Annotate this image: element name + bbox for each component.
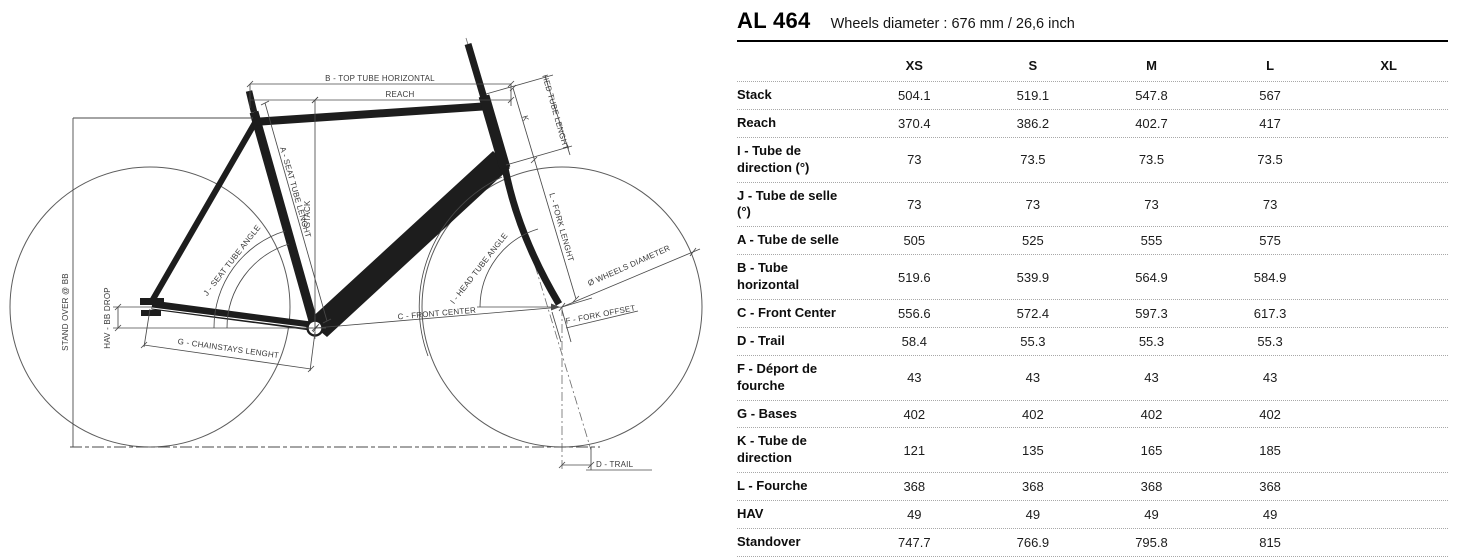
value-cell: 43 (855, 370, 974, 385)
geometry-sheet: AL 464 Wheels diameter : 676 mm / 26,6 i… (737, 0, 1448, 557)
wheels-diameter-label: Ø WHEELS DIAMETER (586, 243, 671, 288)
value-cell: 564.9 (1092, 270, 1211, 285)
value-cell: 572.4 (974, 306, 1093, 321)
value-cell: 58.4 (855, 334, 974, 349)
trail-label: D - TRAIL (596, 460, 634, 469)
row-label: L - Fourche (737, 473, 855, 500)
table-row: B - Tube horizontal519.6539.9564.9584.9 (737, 255, 1448, 300)
row-label: F - Déport de fourche (737, 356, 855, 400)
value-cell: 370.4 (855, 116, 974, 131)
row-label: Reach (737, 110, 855, 137)
top-tube-label: B - TOP TUBE HORIZONTAL (325, 74, 435, 83)
value-cell: 519.1 (974, 88, 1093, 103)
table-row: L - Fourche368368368368 (737, 473, 1448, 501)
k-label: K (520, 114, 530, 122)
value-cell: 525 (974, 233, 1093, 248)
row-label: K - Tube de direction (737, 428, 855, 472)
table-row: J - Tube de selle (°)73737373 (737, 183, 1448, 228)
geometry-table-body: Stack504.1519.1547.8567Reach370.4386.240… (737, 82, 1448, 557)
value-cell: 795.8 (1092, 535, 1211, 550)
table-row: Reach370.4386.2402.7417 (737, 110, 1448, 138)
head-tube-length-label: HED TUBE LENGHT (540, 74, 570, 151)
value-cell: 73.5 (1211, 152, 1330, 167)
value-cell: 73 (1092, 197, 1211, 212)
fork-length-label: L - FORK LENGHT (547, 192, 575, 263)
size-header-row: XS S M L XL (737, 42, 1448, 82)
value-cell: 43 (974, 370, 1093, 385)
value-cell: 49 (855, 507, 974, 522)
value-cell: 73.5 (974, 152, 1093, 167)
value-cell: 73 (855, 197, 974, 212)
value-cell: 584.9 (1211, 270, 1330, 285)
reach-label: REACH (385, 90, 414, 99)
seat-tube-angle-label: J - SEAT TUBE ANGLE (202, 223, 263, 297)
value-cell: 402 (855, 407, 974, 422)
value-cell: 402 (974, 407, 1093, 422)
value-cell: 368 (974, 479, 1093, 494)
value-cell: 121 (855, 443, 974, 458)
fork-offset-label: F - FORK OFFSET (565, 303, 636, 325)
table-row: Standover747.7766.9795.8815 (737, 529, 1448, 557)
bike-geometry-diagram: B - TOP TUBE HORIZONTAL REACH STACK A - … (0, 0, 737, 524)
table-row: D - Trail58.455.355.355.3 (737, 328, 1448, 356)
value-cell: 597.3 (1092, 306, 1211, 321)
value-cell: 505 (855, 233, 974, 248)
value-cell: 575 (1211, 233, 1330, 248)
row-label: B - Tube horizontal (737, 255, 855, 299)
value-cell: 165 (1092, 443, 1211, 458)
value-cell: 73 (1211, 197, 1330, 212)
value-cell: 73.5 (1092, 152, 1211, 167)
front-center-label: C - FRONT CENTER (397, 306, 476, 322)
size-header-s: S (974, 58, 1093, 81)
head-tube-angle-label: I - HEAD TUBE ANGLE (448, 231, 509, 306)
value-cell: 402 (1092, 407, 1211, 422)
value-cell: 55.3 (974, 334, 1093, 349)
value-cell: 417 (1211, 116, 1330, 131)
value-cell: 567 (1211, 88, 1330, 103)
table-row: HAV49494949 (737, 501, 1448, 529)
row-label: A - Tube de selle (737, 227, 855, 254)
chainstays-label: G - CHAINSTAYS LENGHT (177, 337, 279, 360)
row-label: J - Tube de selle (°) (737, 183, 855, 227)
value-cell: 402.7 (1092, 116, 1211, 131)
row-label: D - Trail (737, 328, 855, 355)
value-cell: 368 (1092, 479, 1211, 494)
value-cell: 547.8 (1092, 88, 1211, 103)
value-cell: 55.3 (1211, 334, 1330, 349)
value-cell: 185 (1211, 443, 1330, 458)
value-cell: 539.9 (974, 270, 1093, 285)
geometry-page: { "header": { "model": "AL 464", "subtit… (0, 0, 1464, 524)
value-cell: 43 (1211, 370, 1330, 385)
wheels-diameter-subtitle: Wheels diameter : 676 mm / 26,6 inch (831, 16, 1075, 32)
table-row: I - Tube de direction (°)7373.573.573.5 (737, 138, 1448, 183)
value-cell: 386.2 (974, 116, 1093, 131)
value-cell: 49 (1211, 507, 1330, 522)
row-label: I - Tube de direction (°) (737, 138, 855, 182)
table-row: F - Déport de fourche43434343 (737, 356, 1448, 401)
value-cell: 368 (1211, 479, 1330, 494)
table-row: G - Bases402402402402 (737, 401, 1448, 429)
value-cell: 135 (974, 443, 1093, 458)
size-header-xs: XS (855, 58, 974, 81)
value-cell: 747.7 (855, 535, 974, 550)
value-cell: 519.6 (855, 270, 974, 285)
row-label: Stack (737, 82, 855, 109)
table-row: A - Tube de selle505525555575 (737, 227, 1448, 255)
value-cell: 617.3 (1211, 306, 1330, 321)
size-header-spacer (737, 71, 855, 81)
value-cell: 556.6 (855, 306, 974, 321)
table-row: K - Tube de direction121135165185 (737, 428, 1448, 473)
bb-drop-label: HAV - BB DROP (103, 287, 112, 349)
value-cell: 402 (1211, 407, 1330, 422)
size-header-l: L (1211, 58, 1330, 81)
value-cell: 49 (974, 507, 1093, 522)
sheet-header: AL 464 Wheels diameter : 676 mm / 26,6 i… (737, 0, 1448, 42)
table-row: C - Front Center556.6572.4597.3617.3 (737, 300, 1448, 328)
value-cell: 49 (1092, 507, 1211, 522)
size-header-xl: XL (1329, 58, 1448, 81)
value-cell: 55.3 (1092, 334, 1211, 349)
size-header-m: M (1092, 58, 1211, 81)
model-name: AL 464 (737, 8, 811, 34)
row-label: G - Bases (737, 401, 855, 428)
value-cell: 766.9 (974, 535, 1093, 550)
standover-label: STAND OVER @ BB (61, 273, 70, 351)
row-label: C - Front Center (737, 300, 855, 327)
value-cell: 555 (1092, 233, 1211, 248)
row-label: Standover (737, 529, 855, 556)
value-cell: 73 (974, 197, 1093, 212)
value-cell: 368 (855, 479, 974, 494)
table-row: Stack504.1519.1547.8567 (737, 82, 1448, 110)
value-cell: 504.1 (855, 88, 974, 103)
value-cell: 815 (1211, 535, 1330, 550)
value-cell: 73 (855, 152, 974, 167)
value-cell: 43 (1092, 370, 1211, 385)
